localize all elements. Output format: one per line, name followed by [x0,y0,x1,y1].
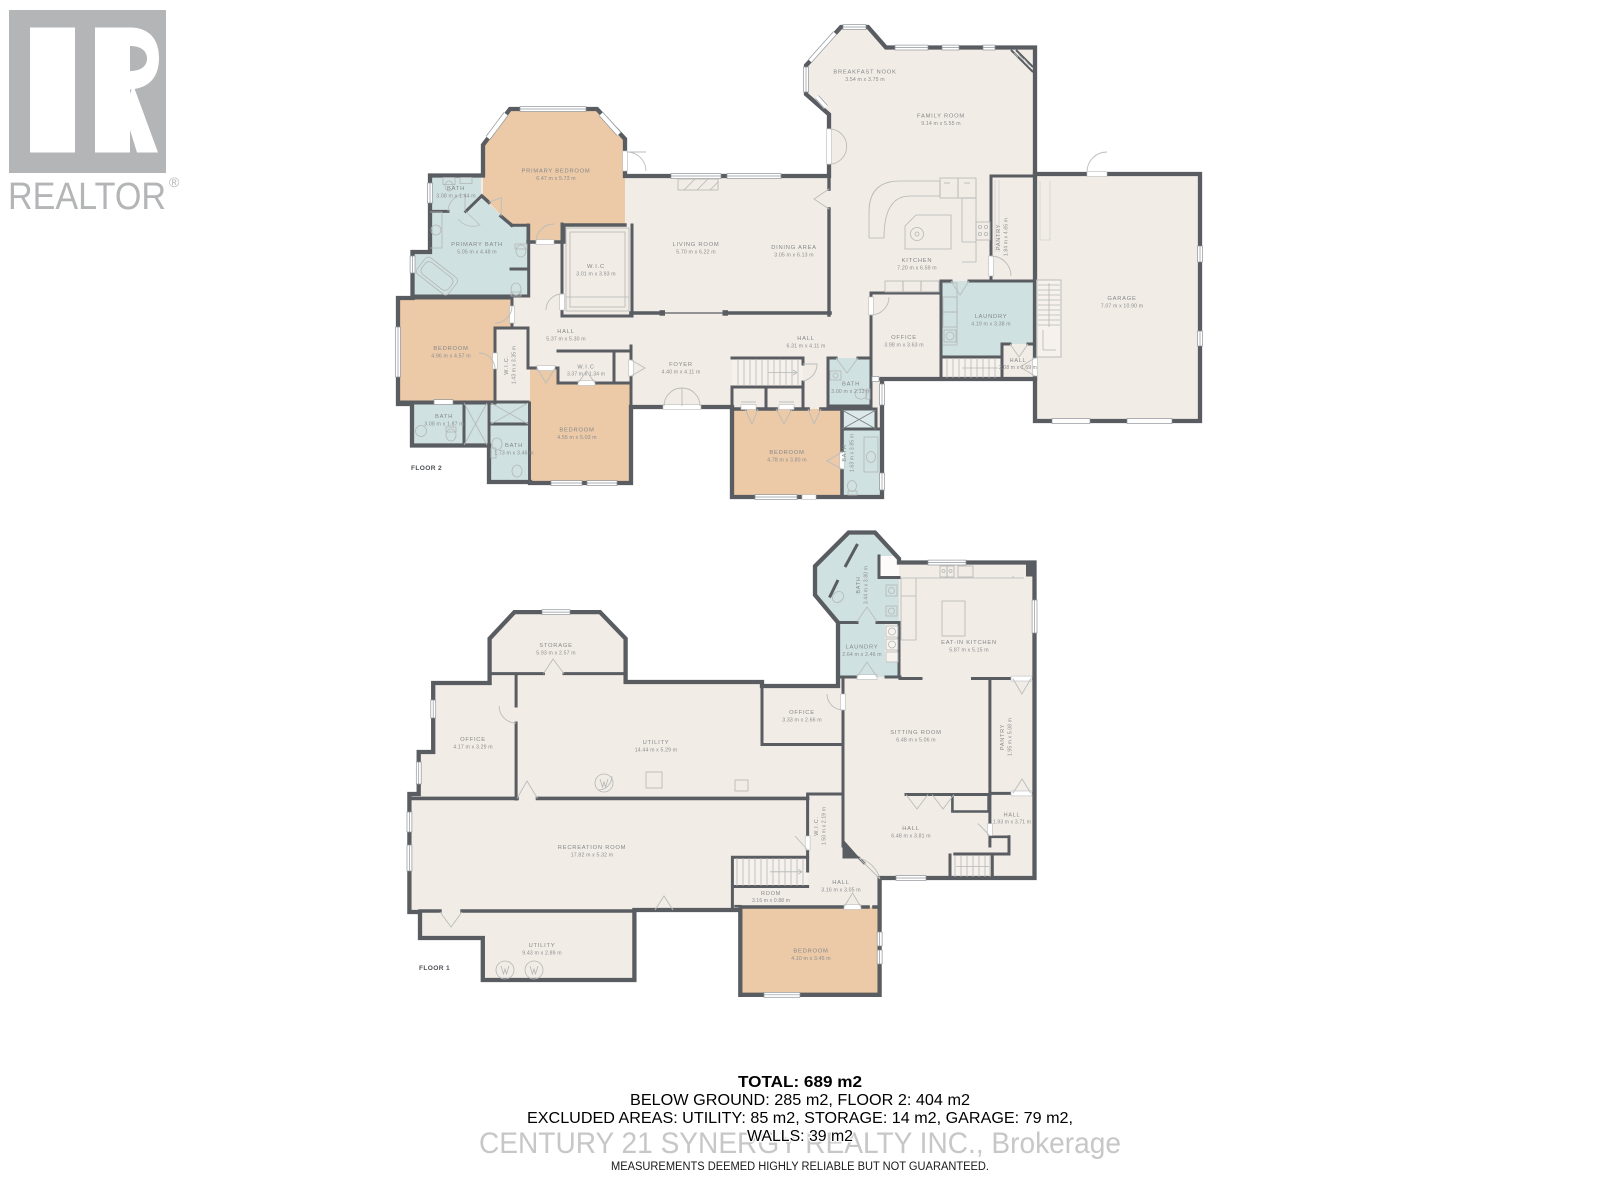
svg-text:FAMILY ROOM: FAMILY ROOM [917,114,965,120]
svg-text:LAUNDRY: LAUNDRY [846,645,879,651]
svg-text:EAT-IN KITCHEN: EAT-IN KITCHEN [941,640,997,646]
svg-text:3.16 m x 3.05 m: 3.16 m x 3.05 m [821,888,860,894]
svg-text:3.08 m x 1.87 m: 3.08 m x 1.87 m [424,422,463,428]
svg-text:7.07 m x 10.90 m: 7.07 m x 10.90 m [1101,304,1143,310]
svg-text:1.84 m x 4.65 m: 1.84 m x 4.65 m [1004,218,1010,256]
svg-text:2.64 m x 2.46 m: 2.64 m x 2.46 m [842,652,881,658]
svg-text:W.I.C: W.I.C [587,264,605,270]
svg-text:STORAGE: STORAGE [539,643,573,649]
svg-text:HALL: HALL [797,336,815,342]
svg-text:HALL: HALL [1004,813,1021,819]
svg-text:FLOOR 1: FLOOR 1 [419,965,450,972]
svg-text:HALL: HALL [557,329,575,335]
svg-text:PANTRY: PANTRY [1000,724,1006,750]
svg-text:6.48 m x 3.81 m: 6.48 m x 3.81 m [891,834,930,840]
svg-text:BATH: BATH [842,444,848,461]
svg-text:6.31 m x 4.11 m: 6.31 m x 4.11 m [786,344,825,350]
svg-text:OFFICE: OFFICE [460,737,486,743]
svg-text:EXCLUDED AREAS: UTILITY: 85 m2: EXCLUDED AREAS: UTILITY: 85 m2, STORAGE:… [527,1110,1073,1127]
svg-text:PRIMARY BATH: PRIMARY BATH [451,242,503,248]
svg-text:RECREATION ROOM: RECREATION ROOM [558,845,626,851]
svg-text:PRIMARY BEDROOM: PRIMARY BEDROOM [521,169,590,175]
svg-text:SITTING ROOM: SITTING ROOM [890,730,942,736]
svg-text:DINING AREA: DINING AREA [771,245,817,251]
svg-text:1.95 m x 5.08 m: 1.95 m x 5.08 m [1008,718,1014,756]
svg-text:5.37 m x 5.30 m: 5.37 m x 5.30 m [546,337,585,343]
svg-text:BEDROOM: BEDROOM [559,428,594,434]
svg-text:BEDROOM: BEDROOM [433,346,468,352]
svg-text:UTILITY: UTILITY [643,740,670,746]
svg-text:W.I.C.: W.I.C. [504,355,510,374]
svg-text:3.33 m x 2.66 m: 3.33 m x 2.66 m [782,718,821,724]
svg-text:REALTOR: REALTOR [8,176,166,218]
svg-text:3.08 m x 1.44 m: 3.08 m x 1.44 m [436,194,475,200]
svg-text:W.I.C.: W.I.C. [814,816,820,835]
svg-text:3.44 m x 3.80 m: 3.44 m x 3.80 m [864,566,870,604]
svg-text:2.08 m x 1.69 m: 2.08 m x 1.69 m [999,365,1037,371]
svg-text:UTILITY: UTILITY [529,943,556,949]
svg-text:BATH: BATH [856,576,862,593]
svg-text:3.54 m x 3.75 m: 3.54 m x 3.75 m [845,77,884,83]
svg-text:FLOOR 2: FLOOR 2 [411,465,442,472]
svg-text:LIVING ROOM: LIVING ROOM [673,242,720,248]
svg-text:OFFICE: OFFICE [789,710,815,716]
svg-text:4.17 m x 3.29 m: 4.17 m x 3.29 m [453,745,492,751]
svg-text:BATH: BATH [842,382,860,388]
svg-text:3.16 m x 0.88 m: 3.16 m x 0.88 m [752,898,790,904]
svg-text:BEDROOM: BEDROOM [769,450,804,456]
svg-text:BEDROOM: BEDROOM [793,949,828,955]
svg-text:3.05 m x 6.13 m: 3.05 m x 6.13 m [774,253,813,259]
svg-text:17.82 m x 5.32 m: 17.82 m x 5.32 m [571,853,613,859]
svg-text:HALL: HALL [832,880,850,886]
svg-text:LAUNDRY: LAUNDRY [975,314,1008,320]
svg-text:4.10 m x 3.45 m: 4.10 m x 3.45 m [791,956,830,962]
svg-text:HALL: HALL [1010,358,1027,364]
svg-text:3.98 m x 3.63 m: 3.98 m x 3.63 m [884,343,923,349]
svg-text:7.20 m x 6.59 m: 7.20 m x 6.59 m [897,266,936,272]
svg-text:14.44 m x 5.29 m: 14.44 m x 5.29 m [635,748,677,754]
svg-text:TOTAL: 689 m2: TOTAL: 689 m2 [738,1074,862,1091]
svg-text:FOYER: FOYER [669,362,693,368]
svg-text:BATH: BATH [435,414,453,420]
svg-text:1.50 m x 2.19 m: 1.50 m x 2.19 m [822,807,828,845]
svg-text:OFFICE: OFFICE [891,335,917,341]
svg-text:KITCHEN: KITCHEN [902,258,933,264]
svg-text:3.00 m x 2.13 m: 3.00 m x 2.13 m [831,389,870,395]
svg-text:5.93 m x 2.57 m: 5.93 m x 2.57 m [536,651,575,657]
svg-text:6.48 m x 5.06 m: 6.48 m x 5.06 m [896,738,935,744]
svg-text:BELOW GROUND: 285 m2, FLOOR 2:: BELOW GROUND: 285 m2, FLOOR 2: 404 m2 [630,1092,970,1109]
svg-text:4.19 m x 3.38 m: 4.19 m x 3.38 m [971,322,1010,328]
svg-text:5.87 m x 5.15 m: 5.87 m x 5.15 m [949,648,988,654]
svg-text:1.93 m x 3.71 m: 1.93 m x 3.71 m [993,820,1031,826]
svg-text:1.43 m x 3.35 m: 1.43 m x 3.35 m [512,346,518,384]
svg-text:ROOM: ROOM [761,891,781,897]
svg-text:4.40 m x 4.11 m: 4.40 m x 4.11 m [661,370,700,376]
svg-text:4.78 m x 3.80 m: 4.78 m x 3.80 m [767,458,806,464]
svg-text:1.63 m x 3.85 m: 1.63 m x 3.85 m [850,434,856,472]
svg-text:PANTRY: PANTRY [996,224,1002,250]
svg-text:BATH: BATH [447,186,465,192]
svg-text:1.73 m x 3.46 m: 1.73 m x 3.46 m [494,451,533,457]
svg-text:®: ® [169,174,180,190]
svg-text:BATH: BATH [505,443,523,449]
svg-text:9.43 m x 2.89 m: 9.43 m x 2.89 m [522,951,561,957]
svg-text:5.05 m x 4.48 m: 5.05 m x 4.48 m [457,250,496,256]
svg-text:W.I.C: W.I.C [577,365,594,371]
svg-text:5.70 m x 6.22 m: 5.70 m x 6.22 m [676,250,715,256]
svg-text:HALL: HALL [902,826,920,832]
svg-text:4.96 m x 4.57 m: 4.96 m x 4.57 m [431,354,470,360]
svg-text:MEASUREMENTS DEEMED HIGHLY REL: MEASUREMENTS DEEMED HIGHLY RELIABLE BUT … [611,1161,989,1173]
svg-text:3.37 m x 1.34 m: 3.37 m x 1.34 m [567,372,605,378]
svg-text:WALLS: 39 m2: WALLS: 39 m2 [747,1128,853,1145]
svg-text:6.47 m x 5.73 m: 6.47 m x 5.73 m [536,176,575,182]
svg-text:GARAGE: GARAGE [1107,296,1136,302]
svg-text:BREAKFAST NOOK: BREAKFAST NOOK [833,70,896,76]
svg-text:9.14 m x 5.55 m: 9.14 m x 5.55 m [921,121,960,127]
svg-text:4.55 m x 5.03 m: 4.55 m x 5.03 m [557,435,596,441]
svg-text:3.01 m x 3.93 m: 3.01 m x 3.93 m [576,272,615,278]
